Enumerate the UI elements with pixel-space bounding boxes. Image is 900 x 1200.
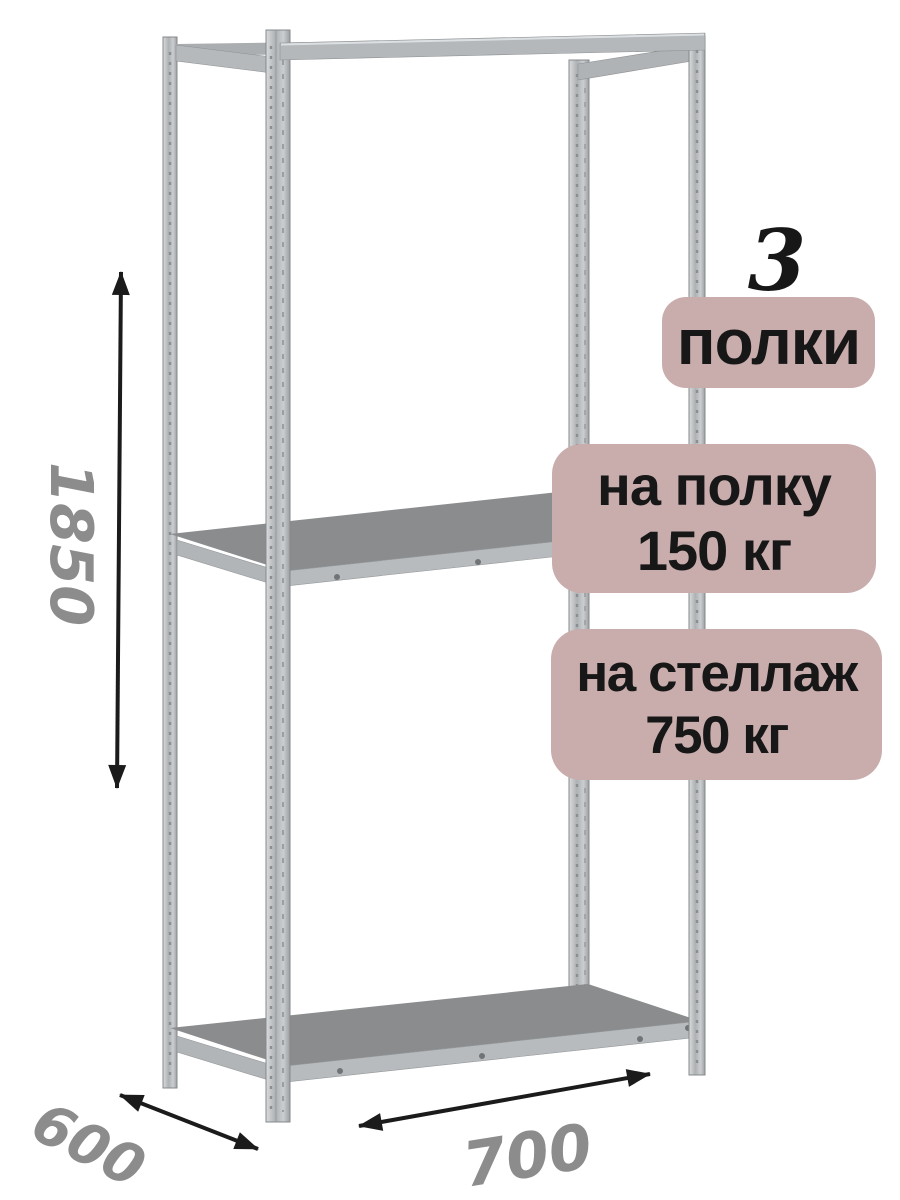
height-dimension-label: 1850 (40, 462, 102, 622)
shelf-rack-illustration (0, 0, 900, 1200)
per-rack-load-label: на стеллаж (576, 643, 857, 704)
width-arrow-icon (359, 1074, 650, 1126)
shelf-count-badge: полки (662, 297, 875, 388)
front-left-post (266, 30, 290, 1122)
per-shelf-load-label: на полку (597, 454, 831, 519)
per-shelf-load-badge: на полку 150 кг (552, 444, 876, 593)
product-image: 3 полки на полку 150 кг на стеллаж 750 к… (0, 0, 900, 1200)
per-rack-load-value: 750 кг (645, 705, 788, 766)
per-rack-load-badge: на стеллаж 750 кг (551, 629, 882, 780)
per-shelf-load-value: 150 кг (637, 519, 791, 584)
back-left-post (163, 37, 177, 1088)
bottom-shelf (170, 984, 700, 1086)
height-arrow-icon (117, 272, 121, 788)
shelf-count-number: 3 (727, 216, 827, 306)
shelf-count-label: полки (677, 305, 860, 379)
